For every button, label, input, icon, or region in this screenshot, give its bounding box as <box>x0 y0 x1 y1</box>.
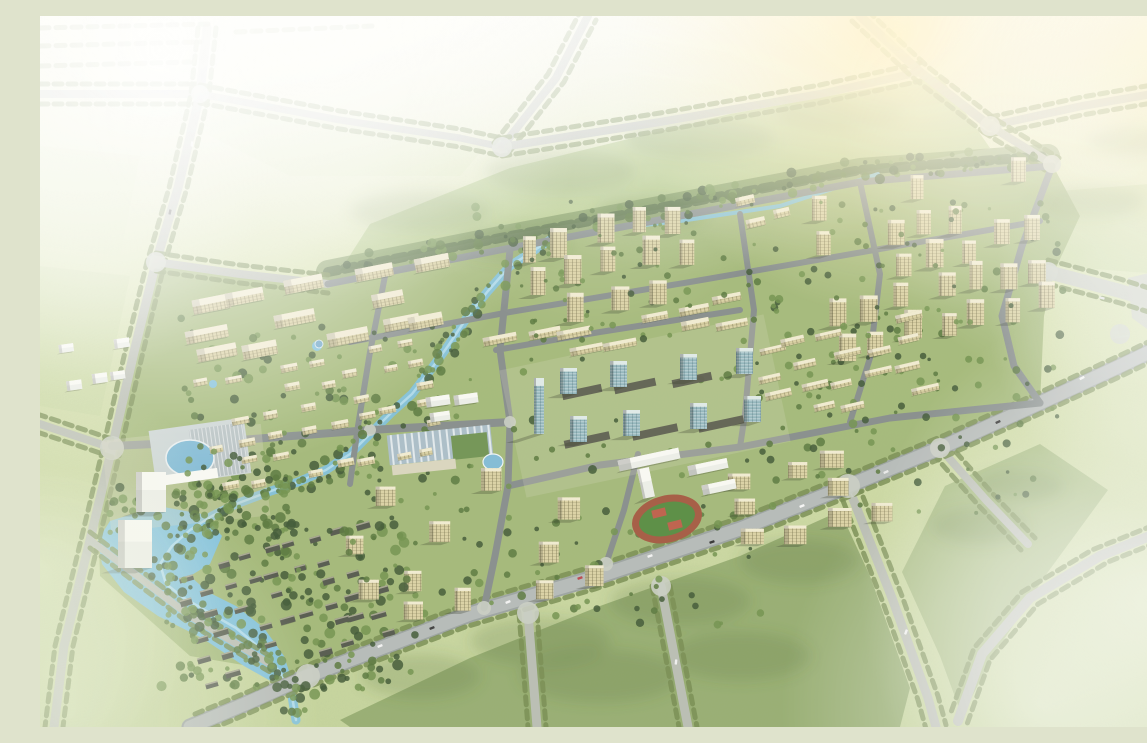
aerial-masterplan-rendering <box>40 16 1147 727</box>
warm-tint-overlay <box>40 16 1147 727</box>
aerial-rendering-canvas <box>40 16 1147 727</box>
haze-layer <box>40 16 1147 727</box>
scene-root <box>40 16 1147 727</box>
